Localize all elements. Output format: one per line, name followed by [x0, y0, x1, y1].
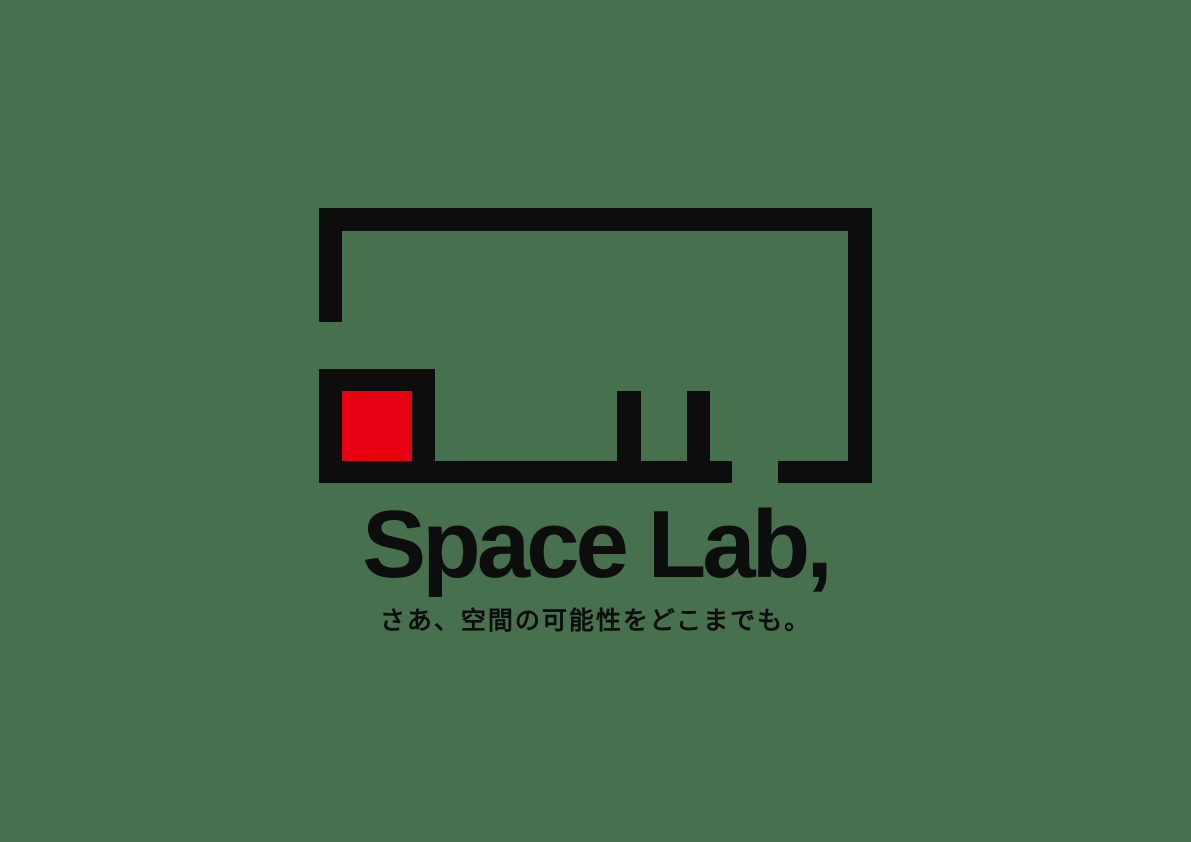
space-lab-logo: Space Lab, さあ、空間の可能性をどこまでも。	[0, 0, 1191, 842]
logo-wordmark: Space Lab,	[362, 497, 829, 593]
logo-mark-red-square	[342, 391, 412, 461]
logo-mark-left-bar	[319, 208, 342, 322]
logo-mark-small-bar-1	[617, 391, 641, 462]
logo-mark-bottom-bar-right	[778, 461, 872, 483]
page-background: Space Lab, さあ、空間の可能性をどこまでも。	[0, 0, 1191, 842]
logo-mark-right-bar	[848, 208, 872, 483]
logo-tagline: さあ、空間の可能性をどこまでも。	[380, 606, 811, 636]
logo-mark-small-bar-2	[687, 391, 710, 462]
logo-mark-top-bar	[319, 208, 872, 231]
logo-mark-bottom-bar-left	[435, 461, 732, 483]
logo-mark	[319, 208, 872, 483]
